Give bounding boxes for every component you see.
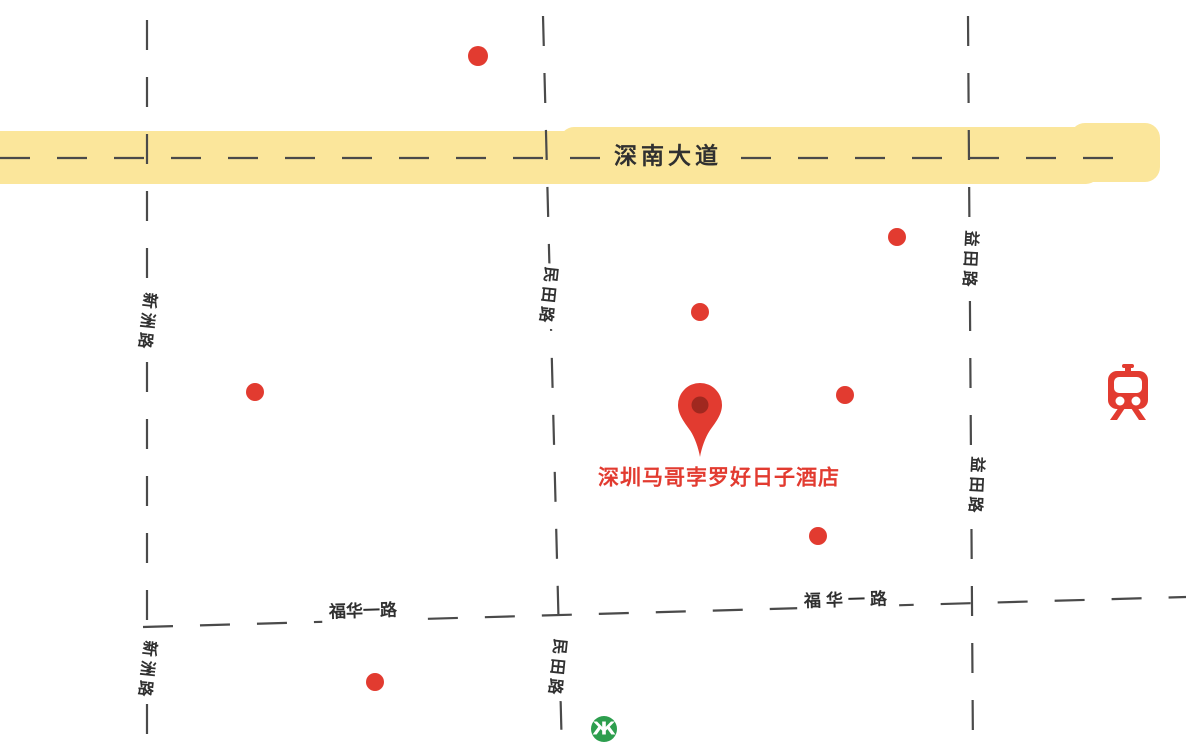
- road-label-fuhua-east: 福华一路: [797, 589, 900, 613]
- metro-logo-glyph: Ж: [592, 720, 615, 738]
- map-canvas[interactable]: 深南大道 新洲路 新洲路 民田路 民田路 益田路 益田路 福华一路 福华一路 深…: [0, 0, 1186, 754]
- map-base-layer: [0, 0, 1186, 754]
- poi-dot[interactable]: [468, 46, 488, 66]
- train-station-icon[interactable]: [1106, 364, 1150, 420]
- poi-dot[interactable]: [809, 527, 827, 545]
- train-glyph: [1108, 364, 1148, 420]
- road-line-yitian: [968, 16, 973, 754]
- hotel-pin-center: [692, 397, 709, 414]
- poi-dot[interactable]: [888, 228, 906, 246]
- poi-dot[interactable]: [836, 386, 854, 404]
- road-label-fuhua-west: 福华一路: [322, 600, 405, 623]
- poi-dot[interactable]: [366, 673, 384, 691]
- shennan-avenue-band: [0, 123, 1160, 184]
- hotel-label[interactable]: 深圳马哥孛罗好日子酒店: [598, 468, 840, 489]
- poi-dot[interactable]: [246, 383, 264, 401]
- hotel-pin-body: [678, 383, 722, 457]
- road-line-fuhua: [143, 597, 1186, 627]
- road-label-shennan-avenue: 深南大道: [602, 143, 734, 172]
- poi-dot[interactable]: [691, 303, 709, 321]
- hotel-pin[interactable]: [677, 382, 723, 460]
- road-label-yitian-south: 益田路: [962, 453, 989, 519]
- shenzhen-metro-icon[interactable]: Ж: [591, 716, 617, 742]
- road-label-yitian-north: 益田路: [956, 227, 983, 293]
- dashed-road-lines: [0, 16, 1186, 754]
